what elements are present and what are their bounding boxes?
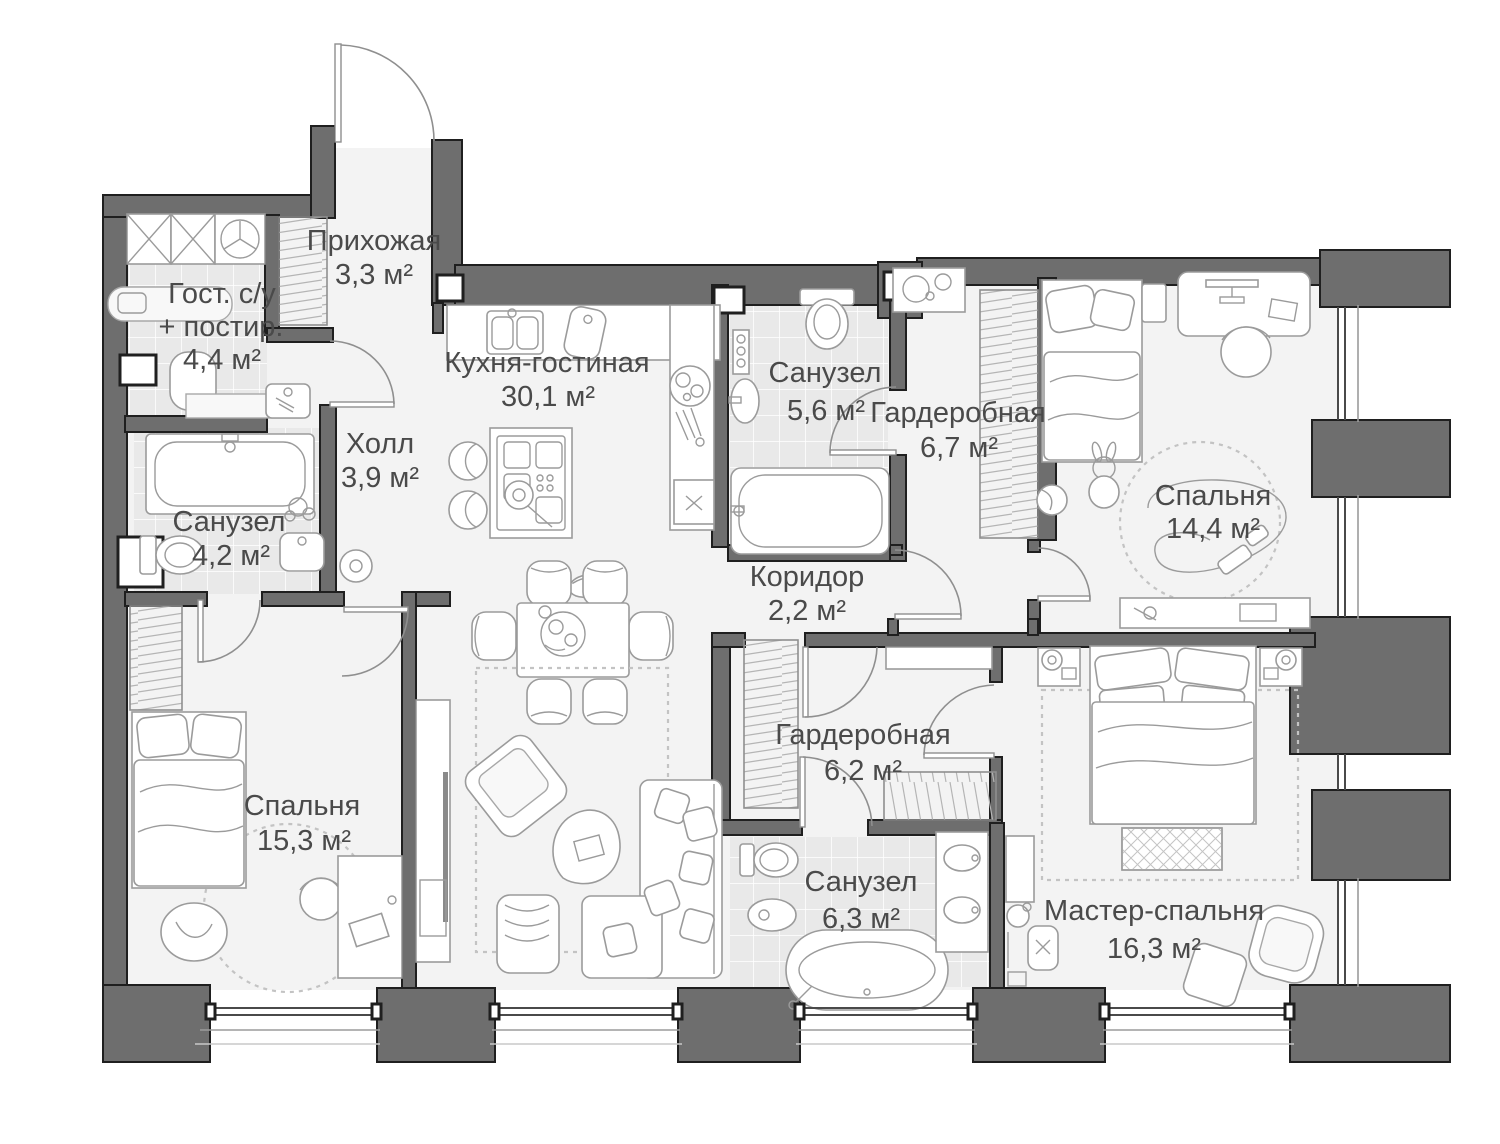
room-area: 4,2 м² [192, 540, 270, 572]
room-name: Санузел [769, 357, 882, 389]
entrance-door-leaf [335, 44, 341, 142]
room-name: Гардеробная [870, 397, 1045, 429]
room-name: Санузел [805, 866, 918, 898]
room-area: 4,4 м² [183, 344, 261, 376]
entrance-door-arc [341, 45, 434, 141]
floor-plan-drawing: Прихожая 3,3 м² Гост. с/у + постир. 4,4 … [0, 0, 1500, 1144]
room-name: Кухня-гостиная [444, 347, 649, 379]
room-name: Спальня [1155, 480, 1272, 512]
room-area: 14,4 м² [1166, 513, 1260, 545]
room-name: Прихожая [307, 225, 441, 257]
room-name-2: + постир. [159, 311, 284, 343]
room-area: 6,7 м² [920, 432, 998, 464]
room-area: 15,3 м² [257, 825, 351, 857]
room-name: Коридор [750, 561, 865, 593]
room-area: 3,3 м² [335, 259, 413, 291]
room-name: Мастер-спальня [1044, 895, 1264, 927]
room-area: 16,3 м² [1107, 933, 1201, 965]
room-name: Холл [346, 428, 414, 460]
room-area: 6,2 м² [824, 755, 902, 787]
room-area: 5,6 м² [787, 395, 865, 427]
room-name: Гост. с/у [168, 278, 276, 310]
room-name: Гардеробная [775, 719, 950, 751]
room-name: Санузел [173, 506, 286, 538]
room-area: 2,2 м² [768, 595, 846, 627]
room-area: 3,9 м² [341, 462, 419, 494]
room-name: Спальня [244, 790, 361, 822]
room-label-bedroom-14-4: Спальня 14,4 м² [1155, 480, 1272, 545]
room-area: 30,1 м² [501, 381, 595, 413]
floor-plan-page: Прихожая 3,3 м² Гост. с/у + постир. 4,4 … [0, 0, 1500, 1144]
room-area: 6,3 м² [822, 903, 900, 935]
